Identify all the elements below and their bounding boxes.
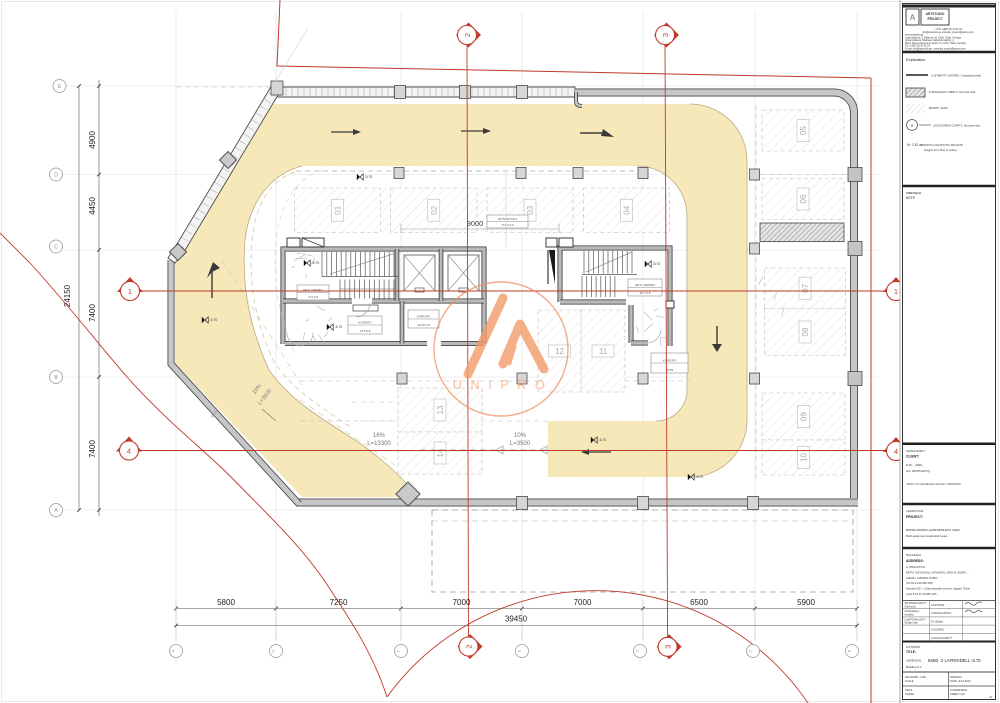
svg-text:2: 2	[464, 644, 473, 648]
svg-text:C: C	[54, 245, 58, 251]
svg-text:8FO8N7 / Earth: 8FO8N7 / Earth	[929, 106, 948, 110]
svg-text:6.LIETDSW: 6.LIETDSW	[931, 604, 945, 607]
svg-text:L=3500: L=3500	[510, 441, 531, 447]
svg-text:U N I P R O: U N I P R O	[453, 378, 547, 392]
svg-text:KOROPO: KOROPO	[663, 359, 677, 363]
svg-text:05: 05	[799, 126, 808, 135]
svg-text:12: 12	[555, 347, 564, 356]
svg-text:08: 08	[801, 327, 810, 336]
svg-text:4: 4	[894, 447, 898, 456]
svg-text:TITLE:: TITLE:	[906, 650, 916, 654]
svg-text:8.16: _2009_: 8.16: _2009_	[906, 463, 924, 467]
svg-text:13: 13	[436, 405, 445, 414]
svg-text:7000: 7000	[453, 598, 471, 607]
svg-text:B: B	[847, 649, 852, 652]
svg-text:(T) (Sober): (T) (Sober)	[931, 620, 943, 623]
svg-text:LAFGUIOFIEN COR4TI / Structure: LAFGUIOFIEN COR4TI / Structure axis	[933, 124, 981, 128]
svg-text:1: 1	[894, 287, 898, 296]
svg-text:( plot # 81.14.10.085.105 ): ( plot # 81.14.10.085.105 )	[906, 592, 938, 596]
svg-text:SCALE: SCALE	[905, 679, 914, 683]
svg-text:(I.D 81.14.30.085.105): (I.D 81.14.30.085.105)	[906, 581, 933, 585]
svg-text:16%: 16%	[373, 433, 386, 439]
svg-text:REPYI 702TILEGNL 10PHJNPO, 546: REPYI 702TILEGNL 10PHJNPO, 5463-OL 8O8EY…	[906, 570, 969, 574]
svg-text:D: D	[635, 649, 640, 652]
svg-text:D: D	[54, 173, 58, 179]
svg-text:L=13300: L=13300	[367, 441, 391, 447]
svg-text:4900: 4900	[88, 131, 97, 149]
svg-text:Heights from floor to ceiling: Heights from floor to ceiling	[924, 148, 957, 152]
svg-text:Chief arch.: Chief arch.	[905, 605, 917, 608]
svg-text:7400: 7400	[88, 440, 97, 458]
svg-text:LUSTBAFITI UNTDIRE / Cadastral: LUSTBAFITI UNTDIRE / Cadastral border	[931, 74, 981, 78]
svg-text:39450: 39450	[505, 615, 528, 624]
svg-text:ADDRESS:: ADDRESS:	[906, 559, 924, 563]
svg-text:ZIBEISEIAI:: ZIBEISEIAI:	[906, 191, 922, 195]
svg-text:LAFIRCUSN:: LAFIRCUSN:	[906, 509, 924, 513]
svg-text:2000FIO0:: 2000FIO0:	[950, 675, 963, 679]
svg-text:714 0.8: 714 0.8	[308, 295, 318, 299]
svg-text:Design team: Design team	[905, 622, 918, 625]
svg-text:NOTE: NOTE	[906, 196, 915, 200]
svg-text:info@artstudio.ge artstudio_p: info@artstudio.ge artstudio_project@yaho…	[922, 31, 973, 34]
svg-text:FURTZLAFIOL UDIETI / Concrete: FURTZLAFIOL UDIETI / Concrete wall	[929, 90, 975, 94]
svg-text:7250: 7250	[330, 598, 348, 607]
svg-text:3: 3	[661, 33, 670, 37]
svg-text:5900: 5900	[797, 598, 815, 607]
svg-text:24150: 24150	[63, 284, 72, 307]
svg-text:10.40 0.8: 10.40 0.8	[417, 323, 430, 327]
svg-text:E: E	[517, 649, 522, 652]
svg-text:7400: 7400	[88, 304, 97, 322]
svg-text:8360| -2 LAFROIDELL -6.70: 8360| -2 LAFROIDELL -6.70	[928, 658, 981, 663]
svg-text:-6.70: -6.70	[696, 475, 704, 479]
svg-text:G: G	[271, 649, 276, 652]
svg-text:PHASE: PHASE	[905, 692, 914, 696]
svg-text:UNIDSTCI CAILATIOTAL SIFUIATO: UNIDSTCI CAILATIOTAL SIFUIATO	[920, 143, 963, 147]
svg-text:"IATO" LLC Identification Num: "IATO" LLC Identification Number: 405070…	[906, 482, 961, 486]
svg-text:4: 4	[127, 446, 131, 455]
svg-text:8ALIATA80: 1:100: 8ALIATA80: 1:100	[905, 675, 926, 679]
svg-text:TITRHATSESL: TITRHATSESL	[950, 688, 968, 692]
svg-text:14: 14	[436, 448, 445, 457]
svg-text:5800: 5800	[217, 598, 235, 607]
svg-text:4450: 4450	[88, 197, 97, 215]
svg-text:(s/n 405071107Q): (s/n 405071107Q)	[906, 469, 930, 473]
svg-text:2675/2977/8-2: 2675/2977/8-2	[498, 217, 518, 221]
svg-text:9000: 9000	[467, 219, 484, 228]
svg-text:8OLA8AFII:: 8OLA8AFII:	[906, 553, 922, 557]
svg-text:GRADUOIETI:: GRADUOIETI:	[906, 449, 926, 453]
svg-text:7000: 7000	[574, 598, 592, 607]
svg-text:18.7 0.8: 18.7 0.8	[640, 291, 651, 295]
svg-text:H: H	[171, 649, 176, 652]
svg-text:Multi-apartment residential ho: Multi-apartment residential house	[906, 534, 948, 538]
svg-text:CLIENT:: CLIENT:	[906, 455, 919, 459]
svg-text:-5.70: -5.70	[335, 325, 343, 329]
svg-text:10: 10	[800, 453, 809, 462]
svg-text:ERTL DER009: ERTL DER009	[635, 283, 655, 287]
svg-text:Explication: Explication	[906, 57, 925, 62]
svg-text:ARTSTUDIO: ARTSTUDIO	[926, 12, 945, 16]
svg-text:5.OZCELIC/PSLO: 5.OZCELIC/PSLO	[931, 612, 951, 615]
svg-text:KOROPO: KOROPO	[358, 321, 372, 325]
svg-text:29.84: 29.84	[666, 368, 674, 372]
svg-text:-5.70: -5.70	[312, 261, 320, 265]
svg-text:A: A	[910, 13, 916, 22]
svg-text:11: 11	[599, 347, 608, 356]
svg-text:01: 01	[334, 205, 343, 214]
svg-text:DATE +6.10.2020: DATE +6.10.2020	[950, 679, 971, 683]
svg-text:D.AOLSGLIL8EYT: D.AOLSGLIL8EYT	[931, 637, 952, 640]
svg-text:d. O8OLOITILO.: d. O8OLOITILO.	[906, 565, 926, 569]
svg-text:8MR30LO6INR60-LAIAMFDIR3ILEICN: 8MR30LO6INR60-LAIAMFDIR3ILEICN UAIETI	[906, 528, 960, 532]
svg-text:772.3 0.9: 772.3 0.9	[501, 223, 514, 227]
svg-text:3: 3	[663, 645, 672, 649]
svg-text:-5.70: -5.70	[365, 175, 373, 179]
svg-text:14.5 0.8: 14.5 0.8	[360, 329, 371, 333]
svg-text:-5.70: -5.70	[210, 318, 218, 322]
svg-text:PROJECT: PROJECT	[927, 17, 942, 21]
svg-text:10%: 10%	[514, 433, 527, 439]
svg-text:03: 03	[526, 205, 535, 214]
svg-text:C: C	[748, 649, 753, 652]
svg-text:LISTOPRO: LISTOPRO	[906, 645, 921, 649]
svg-text:SHEET A-50: SHEET A-50	[950, 692, 965, 696]
svg-text:SOEM32/41...: SOEM32/41...	[906, 659, 924, 663]
svg-text:L28O6Y, L28O8OL 8Y8EY.: L28O6Y, L28O8OL 8Y8EY.	[906, 576, 938, 580]
svg-text:02: 02	[430, 205, 439, 214]
svg-text:PROJECT:: PROJECT:	[906, 515, 923, 519]
svg-text:6500: 6500	[690, 598, 708, 607]
svg-text:06: 06	[799, 194, 808, 203]
svg-text:Nearby # 82. I. Chavchavadze a: Nearby # 82. I. Chavchavadze avenue, Sag…	[906, 587, 970, 591]
svg-text:Architect: Architect	[905, 614, 915, 617]
svg-text:1: 1	[128, 287, 132, 296]
svg-text:TIELS: TIELS	[905, 688, 912, 692]
svg-text:6.GSGIR5C: 6.GSGIR5C	[931, 629, 945, 632]
svg-text:2: 2	[463, 33, 472, 37]
svg-text:KOROPO: KOROPO	[417, 315, 431, 319]
svg-text:-5.70: -5.70	[653, 262, 661, 266]
svg-text:Building # 1: Building # 1	[906, 665, 922, 669]
svg-text:04: 04	[623, 205, 632, 214]
svg-text:-6.70: -6.70	[599, 438, 607, 442]
svg-text:09: 09	[800, 412, 809, 421]
